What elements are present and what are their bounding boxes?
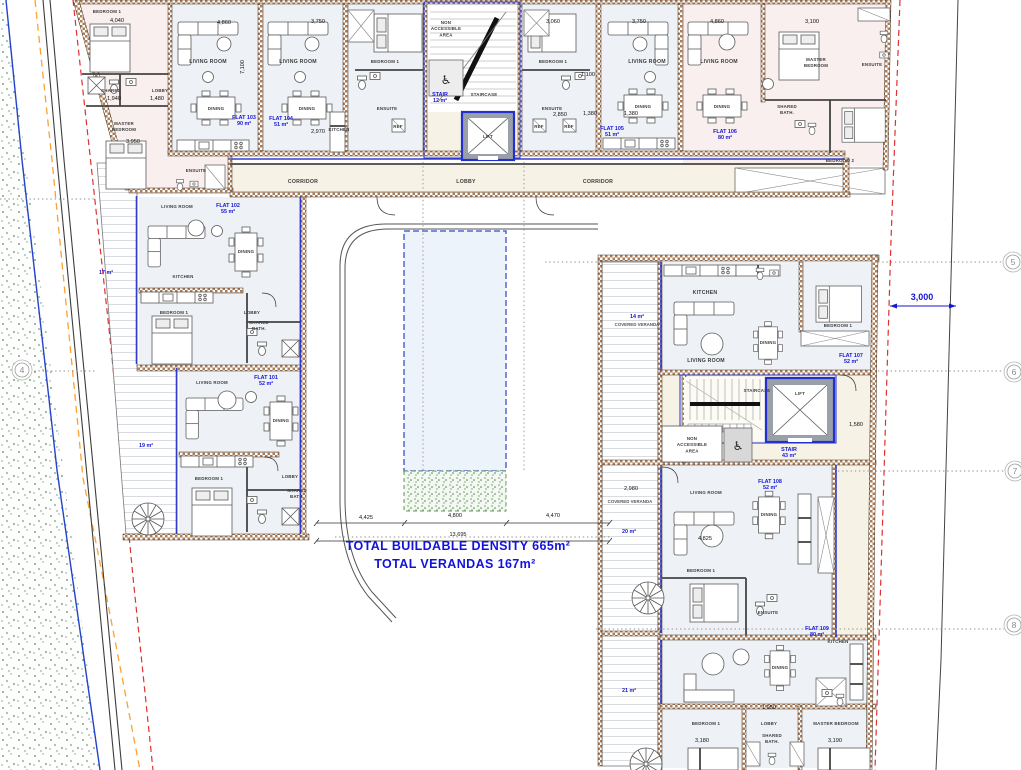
dim-4860-a: 4,860 — [217, 20, 231, 26]
label-ref2-flat105: REF — [564, 124, 573, 129]
label-veranda-20: 20 m² — [622, 529, 636, 535]
wheelchair-icon-right: ♿ — [733, 439, 744, 453]
pool — [404, 231, 506, 471]
floor-plan-canvas: ♿ ♿ — [0, 0, 1021, 770]
label-corridor-left: CORRIDOR — [288, 179, 318, 185]
label-corridor-right: CORRIDOR — [583, 179, 613, 185]
label-lift-right: LIFT — [795, 391, 805, 396]
label-stair-top: STAIR12 m² — [432, 92, 448, 104]
label-ensuite-flat106: ENSUITE — [862, 62, 882, 67]
label-veranda-21: 21 m² — [622, 688, 636, 694]
label-lobby-center: LOBBY — [456, 179, 476, 185]
label-master-flat103: MASTERBEDROOM — [112, 121, 136, 132]
label-kitchen-flat109: KITCHEN — [828, 639, 849, 644]
label-bedroom2-flat106: BEDROOM 2 — [826, 158, 855, 163]
label-staircase-right: STAIRCASE — [744, 388, 771, 393]
wheelchair-icon-top: ♿ — [441, 73, 452, 87]
svg-text:8: 8 — [1012, 620, 1017, 630]
dim-2850: 2,850 — [553, 112, 567, 118]
label-veranda-19: 19 m² — [139, 443, 153, 449]
svg-text:5: 5 — [1011, 257, 1016, 267]
label-total-verandas: TOTAL VERANDAS 167m² — [374, 557, 536, 571]
dim-7100: 7,100 — [240, 60, 246, 74]
label-total-density: TOTAL BUILDABLE DENSITY 665m² — [346, 539, 571, 553]
grid-bubble-7: 7 — [1005, 461, 1021, 481]
label-veranda-14: 14 m² — [630, 314, 644, 320]
lift-right — [766, 378, 834, 442]
label-dining-flat102: DINING — [238, 249, 255, 254]
label-ensuite-flat108: ENSUITE — [758, 610, 778, 615]
label-dining-flat108: DINING — [761, 512, 778, 517]
svg-text:4: 4 — [20, 365, 25, 375]
label-sharedbath-flat102: SHAREDBATH. — [249, 320, 269, 331]
dim-1950: 1,950 — [762, 705, 776, 711]
grid-bubble-5: 5 — [1003, 252, 1021, 272]
label-ref1-flat105: REF — [534, 124, 543, 129]
label-living-flat106: LIVING ROOM — [700, 59, 738, 65]
label-kitchen-flat104: KITCHEN — [329, 127, 350, 132]
label-coveredveranda-20: COVERED VERANDA — [608, 499, 653, 504]
label-living-flat102: LIVING ROOM — [161, 204, 193, 209]
label-kitchen-flat107: KITCHEN — [693, 290, 718, 296]
label-lobby-flat103: LOBBY — [152, 88, 168, 93]
label-ref-flat104: REF — [393, 124, 402, 129]
label-living-flat108: LIVING ROOM — [690, 490, 722, 495]
label-coveredveranda-14: COVERED VERANDA — [615, 322, 660, 327]
dim-3950: 3,950 — [126, 139, 140, 145]
dim-1100: 1,100 — [581, 72, 595, 78]
dim-3750-a: 3,750 — [311, 19, 325, 25]
label-ensuite-flat104: ENSUITE — [377, 106, 397, 111]
dim-13695: 13,695 — [449, 532, 466, 538]
label-shared-flat103: SHARED — [101, 88, 121, 93]
label-lobby-flat101: LOBBY — [282, 474, 298, 479]
dim-1580: 1,580 — [849, 422, 863, 428]
label-lobby-flat109: LOBBY — [761, 721, 777, 726]
spiral-stair-left — [132, 503, 164, 535]
label-staircase-top: STAIRCASE — [471, 92, 498, 97]
label-dining-flat105: DINING — [635, 104, 652, 109]
label-bedroom1-flat102: BEDROOM 1 — [160, 310, 189, 315]
label-sharedbath-flat101: SHAREDBATH. — [287, 488, 307, 499]
svg-text:6: 6 — [1012, 367, 1017, 377]
label-ensuite-flat103: ENSUITE — [186, 168, 206, 173]
label-master-flat106: MASTERBEDROOM — [804, 57, 828, 68]
dim-3750-b: 3,750 — [632, 19, 646, 25]
label-kitchen-flat102: KITCHEN — [173, 274, 194, 279]
dim-2970: 2,970 — [311, 129, 325, 135]
dim-4800: 4,800 — [448, 513, 462, 519]
label-dim-2980: 2,980 — [624, 486, 638, 492]
dim-4825: 4,825 — [698, 536, 712, 542]
label-bedroom1-flat108: BEDROOM 1 — [687, 568, 716, 573]
label-master-flat109: MASTER BEDROOM — [813, 721, 859, 726]
label-dining-flat107: DINING — [760, 340, 777, 345]
dim-4040: 4,040 — [110, 18, 124, 24]
road-edge-line — [936, 0, 958, 770]
label-dining-flat109: DINING — [772, 665, 789, 670]
label-bedroom1-flat104: BEDROOM 1 — [371, 59, 400, 64]
dim-3180: 3,180 — [695, 738, 709, 744]
grid-bubble-8: 8 — [1004, 615, 1021, 635]
label-bedroom1-flat107: BEDROOM 1 — [824, 323, 853, 328]
dim-3000: 3,000 — [911, 292, 934, 302]
label-bedroom1-flat109: BEDROOM 1 — [692, 721, 721, 726]
grid-bubble-6: 6 — [1004, 362, 1021, 382]
label-bedroom1-flat101: BEDROOM 1 — [195, 476, 224, 481]
label-dining-flat103: DINING — [208, 106, 225, 111]
floor-plan-page: ♿ ♿ — [0, 0, 1021, 770]
label-living-flat103: LIVING ROOM — [189, 59, 227, 65]
label-bedroom1-flat103: BEDROOM 1 — [93, 9, 122, 14]
label-lobby-flat102: LOBBY — [244, 310, 260, 315]
label-dining-flat104: DINING — [299, 106, 316, 111]
label-dining-flat101: DINING — [273, 418, 290, 423]
spiral-stair-right-1 — [632, 582, 664, 614]
label-bedroom1-flat105: BEDROOM 1 — [539, 59, 568, 64]
label-lift-top: LIFT — [483, 134, 493, 139]
veranda-flat106 — [735, 168, 885, 194]
label-living-flat107: LIVING ROOM — [687, 358, 725, 364]
dim-4470: 4,470 — [546, 513, 560, 519]
label-living-flat104: LIVING ROOM — [279, 59, 317, 65]
label-living-flat105: LIVING ROOM — [628, 59, 666, 65]
dim-3100: 3,100 — [805, 19, 819, 25]
dim-1380-b: 1,380 — [624, 111, 638, 117]
label-living-flat101: LIVING ROOM — [196, 380, 228, 385]
dim-1380-a: 1,380 — [583, 111, 597, 117]
dim-1480: 1,480 — [150, 96, 164, 102]
label-ensuite-flat105: ENSUITE — [542, 106, 562, 111]
label-dining-flat106: DINING — [714, 104, 731, 109]
dim-3190: 3,190 — [828, 738, 842, 744]
planting-bed — [404, 471, 506, 511]
label-sharedbath-flat106: SHAREDBATH. — [777, 104, 797, 115]
dim-4860-b: 4,860 — [710, 19, 724, 25]
grid-bubble-4: 4 — [12, 360, 32, 380]
label-veranda-17: 17 m² — [99, 270, 113, 276]
label-sharedbath-flat109: SHAREDBATH. — [762, 733, 782, 744]
dim-1940: 1,940 — [107, 96, 121, 102]
dim-4425: 4,425 — [359, 515, 373, 521]
dim-3060: 3,060 — [546, 19, 560, 25]
svg-text:7: 7 — [1013, 466, 1018, 476]
label-stair-right: STAIR43 m² — [781, 447, 797, 459]
